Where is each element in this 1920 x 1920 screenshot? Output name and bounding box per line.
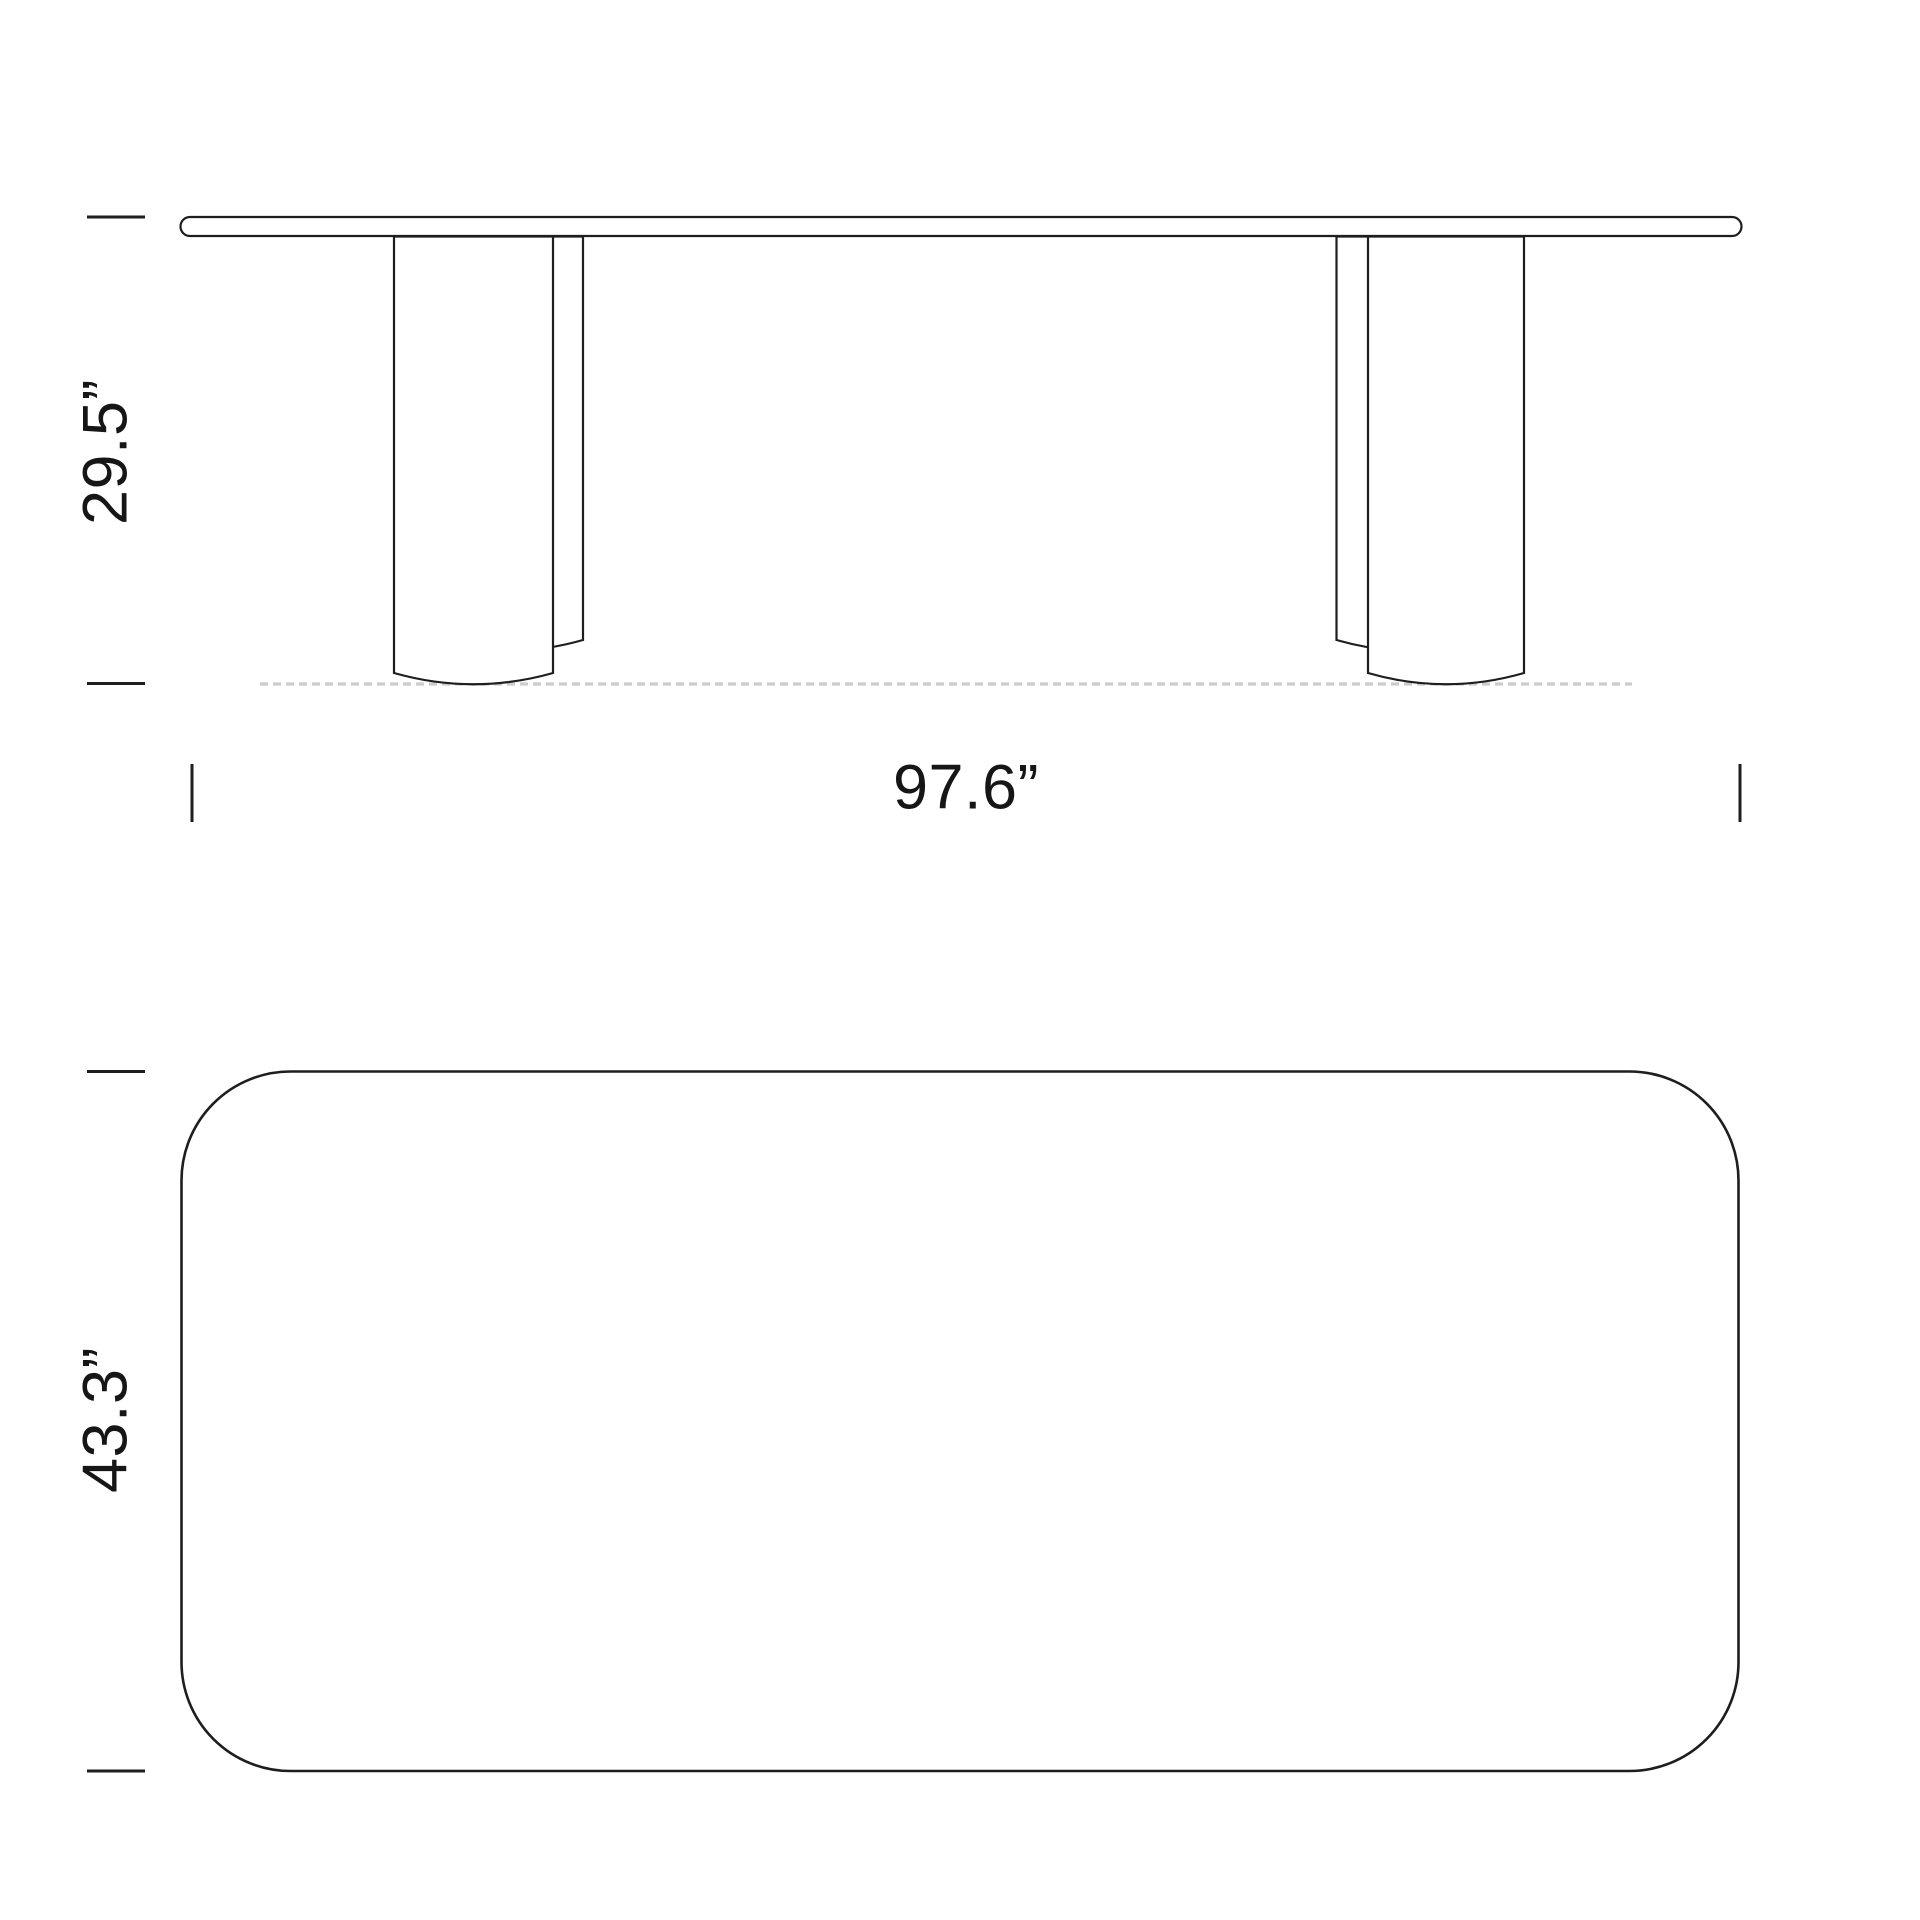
- tabletop-outline: [182, 1072, 1739, 1772]
- table-leg-left-front: [394, 237, 553, 685]
- dimension-drawing: [0, 0, 1920, 1920]
- front-elevation-view: [87, 217, 1742, 822]
- top-plan-view: [87, 1072, 1739, 1772]
- table-leg-right-front: [1368, 237, 1524, 685]
- height-dimension-label: 29.5”: [75, 379, 138, 525]
- tabletop-side-profile: [181, 217, 1742, 236]
- table-dimension-diagram: 29.5” 97.6” 43.3”: [0, 0, 1920, 1920]
- width-dimension-label: 97.6”: [893, 757, 1039, 820]
- depth-dimension-label: 43.3”: [75, 1347, 138, 1493]
